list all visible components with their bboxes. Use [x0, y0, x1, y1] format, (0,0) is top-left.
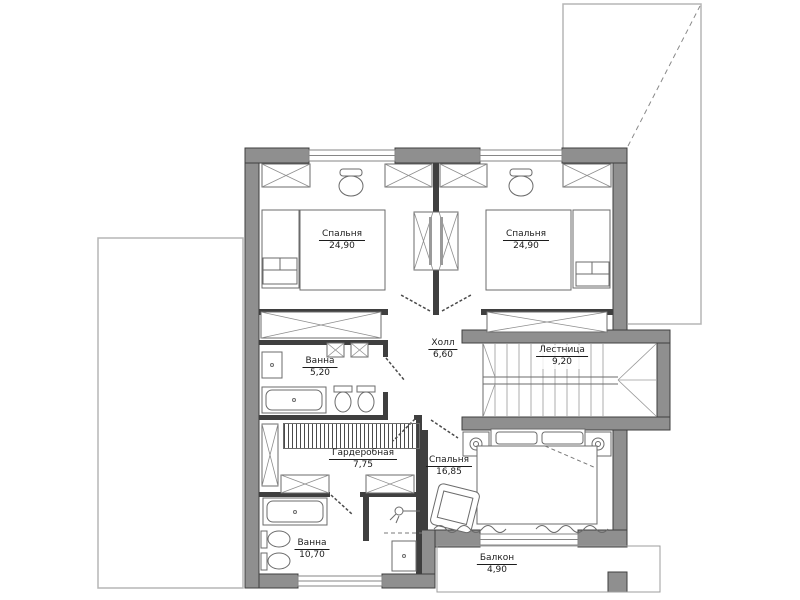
sink: [262, 352, 282, 378]
room-name: Ванна: [295, 538, 330, 550]
wall-stairs-bottom: [462, 417, 670, 430]
door-bath2: [331, 495, 353, 515]
wardrobe-x-box: [414, 212, 458, 270]
shared-wardrobe: [414, 212, 458, 270]
wall-stairs-right: [657, 343, 670, 417]
wall-bedroom3-left: [422, 430, 428, 530]
left-roof-outline: [98, 238, 243, 588]
room-name: Балкон: [477, 553, 517, 565]
room-label-bath-1: Ванна 5,20: [303, 356, 338, 380]
wall-bottom-mid: [382, 574, 435, 588]
wall-top-right: [562, 148, 627, 163]
room-label-bedroom-3: Спальня 16,85: [426, 455, 472, 479]
right-roof-ridge-line: [628, 6, 700, 146]
desk-chair: [509, 176, 533, 196]
toilet: [334, 386, 352, 412]
room-label-stairs: Лестница 9,20: [536, 345, 588, 369]
room-name: Лестница: [536, 345, 588, 357]
toilet: [261, 531, 290, 548]
room-area: 9,20: [536, 357, 588, 368]
room-area: 16,85: [426, 467, 472, 478]
cabinet: [262, 210, 299, 288]
door-bath1: [386, 358, 405, 381]
wall-right-lower: [613, 430, 627, 530]
wall-bath1-right-lower: [383, 392, 388, 415]
bathtub: [263, 498, 327, 525]
bathtub: [262, 387, 326, 413]
room-name: Ванна: [303, 356, 338, 368]
room-name: Гардеробная: [329, 448, 397, 460]
wall-bottom-left: [259, 574, 298, 588]
bath2-fixtures: [261, 498, 422, 571]
room-area: 5,20: [303, 368, 338, 379]
clothes-rail-hatch: [283, 423, 420, 449]
floor-plan: Спальня 24,90 Спальня 24,90 Холл 6,60 Ва…: [0, 0, 800, 600]
room-label-wardrobe: Гардеробная 7,75: [329, 448, 397, 472]
desk-chair: [339, 176, 363, 196]
room-area: 7,75: [329, 460, 397, 471]
room-label-hall: Холл 6,60: [428, 338, 457, 362]
room-name: Спальня: [503, 229, 549, 241]
toilet: [261, 553, 290, 570]
pillow: [496, 432, 537, 444]
room-area: 4,90: [477, 565, 517, 576]
room-name: Холл: [428, 338, 457, 350]
pillow: [542, 432, 583, 444]
room-name: Спальня: [319, 229, 365, 241]
desk-chair-back: [510, 169, 532, 176]
shower-tray: [392, 541, 416, 571]
door-bedroom1: [401, 295, 430, 311]
bedroom3-furniture: [430, 429, 611, 534]
room-area: 10,70: [295, 550, 330, 561]
wall-bath1-right-upper: [383, 340, 388, 357]
wall-top-mid: [395, 148, 480, 163]
double-bed: [477, 446, 597, 524]
balcony-post: [608, 572, 627, 592]
room-label-bath-2: Ванна 10,70: [295, 538, 330, 562]
wall-wardrobe-top: [259, 415, 388, 420]
wall-left: [245, 163, 259, 588]
door-bedroom2: [442, 295, 471, 311]
roof-outlines: [98, 4, 701, 588]
floor-plan-drawing: [0, 0, 800, 600]
cabinet: [573, 210, 610, 288]
room-name: Спальня: [426, 455, 472, 467]
room-area: 6,60: [428, 350, 457, 361]
desk-chair-back: [340, 169, 362, 176]
room-area: 24,90: [319, 241, 365, 252]
wall-bath2-partition: [363, 497, 369, 541]
room-label-bedroom-1: Спальня 24,90: [319, 229, 365, 253]
toilet: [357, 386, 375, 412]
room-label-bedroom-2: Спальня 24,90: [503, 229, 549, 253]
room-label-balcony: Балкон 4,90: [477, 553, 517, 577]
room-area: 24,90: [503, 241, 549, 252]
door-bedroom3: [431, 420, 458, 438]
wall-top-left: [245, 148, 309, 163]
wall-right-upper: [613, 163, 627, 330]
